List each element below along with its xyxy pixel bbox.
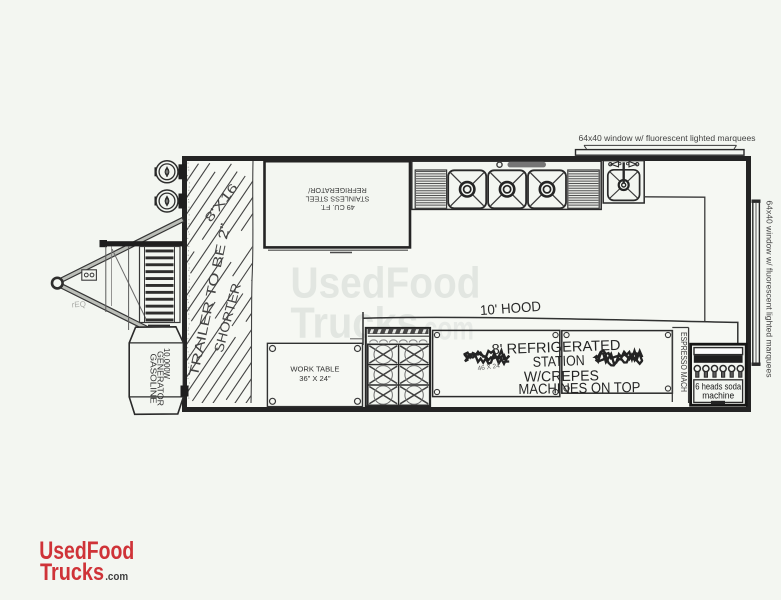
svg-text:MACHINES ON TOP: MACHINES ON TOP: [518, 380, 640, 398]
svg-text:64x40 window w/ fluorescent li: 64x40 window w/ fluorescent lighted marq…: [765, 201, 774, 378]
svg-text:.com: .com: [105, 571, 128, 583]
svg-text:64x40 window w/ fluorescent li: 64x40 window w/ fluorescent lighted marq…: [579, 134, 756, 143]
svg-text:REFRIGERATOR/: REFRIGERATOR/: [308, 186, 366, 195]
svg-text:GASOLINE: GASOLINE: [149, 354, 158, 404]
svg-text:ESPRESSO MACH: ESPRESSO MACH: [679, 332, 689, 392]
svg-text:machine: machine: [702, 390, 734, 400]
svg-text:rEQ: rEQ: [71, 300, 86, 310]
svg-text:WORK TABLE: WORK TABLE: [290, 365, 339, 374]
svg-text:Trucks: Trucks: [40, 559, 104, 586]
svg-text:36” X 24”: 36” X 24”: [299, 374, 331, 383]
